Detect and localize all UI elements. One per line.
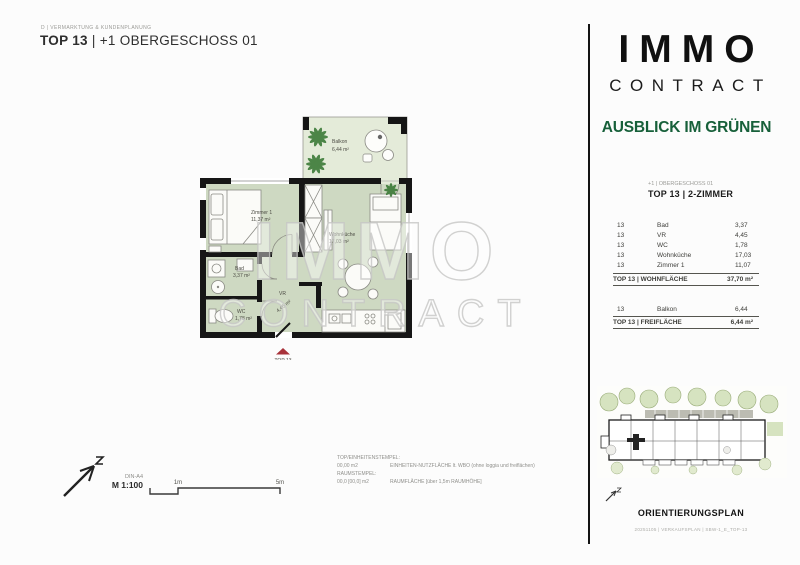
site-plan-drawing	[597, 386, 787, 478]
table-row: 13Balkon6,44	[613, 304, 759, 314]
dining-table-icon	[345, 264, 371, 290]
room-area-zimmer: 11,37 m²	[251, 217, 271, 223]
north-arrow-small-icon	[604, 486, 624, 504]
plan-document-page: D | VERMARKTUNG & KUNDENPLANUNG TOP 13 |…	[0, 0, 800, 565]
living-area-total-row: TOP 13 | WOHNFLÄCHE37,70 m²	[613, 273, 759, 286]
room-area-bad: 3,37 m²	[233, 273, 250, 279]
stamp-row: 00,0 [00,0] m2RAUMFLÄCHE [über 1,5m RAUM…	[337, 480, 535, 486]
room-label-zimmer: Zimmer 1	[251, 210, 272, 216]
scale-label: M 1:100	[101, 480, 143, 490]
living-area-table: 13Bad3,37 13VR4,45 13WC1,78 13Wohnküche1…	[613, 220, 759, 286]
stamp-legend: TOP/EINHEITENSTEMPEL: 00,00 m2EINHEITEN-…	[337, 456, 535, 488]
scale-tick-5m: 5m	[276, 480, 284, 486]
room-label-bad: Bad	[235, 266, 244, 272]
scale-bar: 1m 5m	[148, 474, 288, 500]
table-row: 13Zimmer 111,07	[613, 261, 759, 271]
room-area-wc: 1,78 m²	[235, 316, 252, 322]
page-title: TOP 13 | +1 OBERGESCHOSS 01	[40, 33, 258, 48]
room-label-vr: VR	[279, 291, 286, 297]
unit-floor-label: +1 | OBERGESCHOSS 01	[648, 181, 713, 187]
top13-marker-icon	[276, 348, 290, 355]
table-row: 13WC1,78	[613, 240, 759, 250]
scale-tick-1m: 1m	[174, 480, 182, 486]
project-tagline: AUSBLICK IM GRÜNEN	[598, 119, 775, 137]
room-label-wc: WC	[237, 309, 246, 315]
brand-logo-contract: CONTRACT	[598, 76, 775, 96]
outdoor-area-total-row: TOP 13 | FREIFLÄCHE6,44 m²	[613, 316, 759, 329]
room-area-wohnkueche: 17,03 m²	[329, 239, 349, 245]
table-row: 13Bad3,37	[613, 220, 759, 230]
balcony-area-label: 6,44 m²	[332, 147, 349, 153]
floor-plan-drawing: Balkon 6,44 m²	[195, 110, 420, 360]
unit-type-label: TOP 13 | 2-ZIMMER	[648, 189, 733, 199]
panel-divider	[588, 24, 590, 544]
balcony-label: Balkon	[332, 139, 348, 145]
table-row: 13Wohnküche17,03	[613, 251, 759, 261]
outdoor-area-table: 13Balkon6,44 TOP 13 | FREIFLÄCHE6,44 m²	[613, 304, 759, 329]
orientation-plan-title: ORIENTIERUNGSPLAN	[600, 508, 782, 518]
department-label: D | VERMARKTUNG & KUNDENPLANUNG	[41, 25, 151, 31]
brand-logo-immo: IMMO	[598, 30, 775, 69]
page-title-unit: TOP 13	[40, 33, 88, 48]
top13-marker-label: TOP 13	[274, 358, 291, 360]
document-footer: 20251105 | VERKAUFSPLAN | SBW-1_E_TOP-13	[600, 527, 782, 532]
room-label-wohnkueche: Wohnküche	[329, 232, 356, 238]
indoor-plant-icon	[384, 183, 398, 197]
stamp-row: 00,00 m2EINHEITEN-NUTZFLÄCHE lt. WBO (oh…	[337, 464, 535, 470]
stamp-caption-2: RAUMSTEMPEL:	[337, 472, 535, 478]
page-title-floor: | +1 OBERGESCHOSS 01	[88, 33, 258, 48]
scale-block: DIN-A4 M 1:100	[101, 474, 143, 490]
stamp-caption-1: TOP/EINHEITENSTEMPEL:	[337, 456, 535, 462]
table-row: 13VR4,45	[613, 230, 759, 240]
window	[200, 188, 206, 200]
window	[200, 238, 206, 250]
